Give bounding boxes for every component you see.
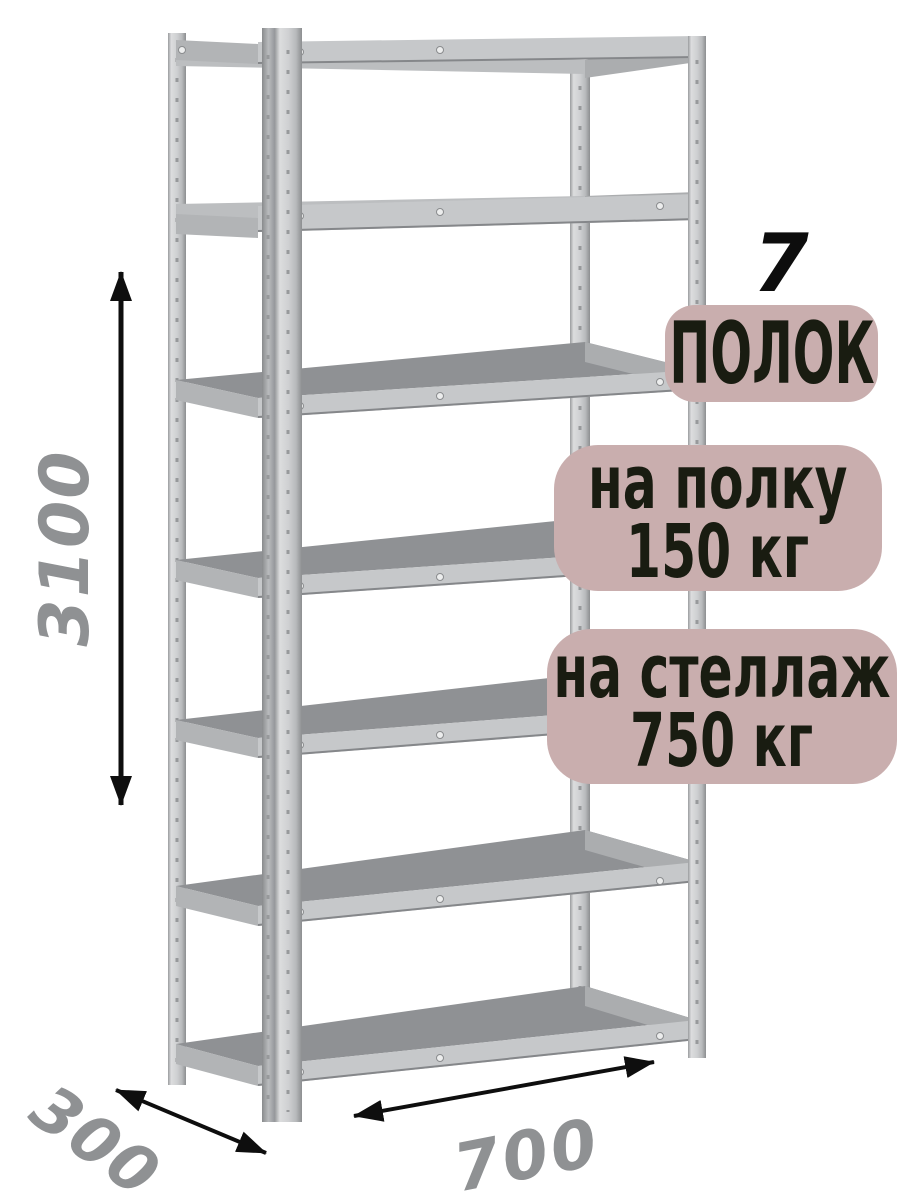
shelf (176, 986, 697, 1086)
height-dimension-label: 3100 (32, 449, 100, 646)
shelf (176, 36, 697, 78)
per-shelf-load-line2: 150 кг (626, 518, 809, 587)
product-image: 3100 300 700 7 ПОЛОК на полку 150 кг на … (0, 0, 900, 1200)
shelf-count-number: 7 (753, 224, 809, 304)
per-rack-load-line1: на стеллаж (553, 638, 890, 707)
per-shelf-load-badge: на полку 150 кг (554, 445, 882, 591)
shelf-count-badge: ПОЛОК (665, 305, 878, 402)
front-left-post (262, 28, 302, 1122)
back-left-post (168, 33, 186, 1085)
per-shelf-load-line1: на полку (588, 449, 847, 518)
shelf (176, 830, 697, 926)
shelf-count-badge-label: ПОЛОК (669, 311, 874, 397)
shelf (176, 342, 697, 418)
per-rack-load-line2: 750 кг (630, 707, 813, 776)
shelving-rack-illustration (0, 0, 900, 1200)
shelf (176, 192, 697, 238)
per-rack-load-badge: на стеллаж 750 кг (547, 629, 897, 784)
